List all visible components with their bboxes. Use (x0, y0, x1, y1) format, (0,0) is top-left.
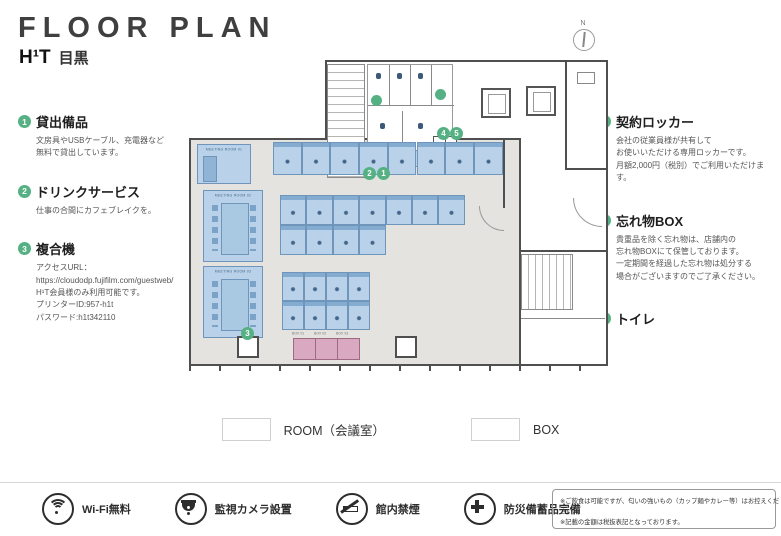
facility-wifi: Wi-Fi無料 (42, 493, 131, 525)
no-smoking-icon (336, 493, 368, 525)
stairwell-lower (521, 254, 573, 310)
box-cell: BOX 03 (337, 338, 360, 360)
elevator-2 (526, 86, 556, 116)
marker-1-badge: 1 (18, 115, 31, 128)
brand-line: H¹T目黒 (19, 47, 89, 69)
plan-marker-4: 4 (437, 127, 450, 140)
toilet-fixture-icon (380, 123, 385, 129)
facility-camera: 監視カメラ設置 (175, 493, 292, 525)
box-cell: BOX 02 (315, 338, 338, 360)
meeting-room-02: MEETING ROOM 02 (203, 190, 263, 262)
phone-booth (438, 195, 464, 225)
wall (565, 62, 567, 170)
phone-booth (304, 301, 326, 330)
phone-booth (330, 142, 359, 175)
pillar (395, 336, 417, 358)
wall (565, 168, 608, 170)
plan-toilet-marker (371, 95, 382, 106)
note-lending-equipment: 1 貸出備品 文房具やUSBケーブル、充電器など 無料で貸出しています。 (18, 112, 190, 160)
grid-ticks (189, 366, 609, 371)
page-title: FLOOR PLAN (18, 12, 277, 45)
phone-booth (412, 195, 438, 225)
floor-plan: ◀ ENTRANCE MEETING ROOM 01 MEETING ROOM … (185, 48, 615, 403)
wall (503, 140, 505, 208)
wifi-icon (42, 493, 74, 525)
disclaimer-text: ※ご飲食は可能ですが、匂いの強いもの（カップ麺やカレー等）はお控えください。 ※… (560, 496, 781, 527)
phone-booth (348, 301, 370, 330)
phone-booth (304, 272, 326, 301)
camera-icon (175, 493, 207, 525)
marker-3-badge: 3 (18, 242, 31, 255)
box-cell: BOX 01 (293, 338, 316, 360)
store-location: 目黒 (59, 50, 89, 67)
legend-box: BOX (471, 418, 559, 441)
phone-booth (306, 195, 332, 225)
note-drink-service: 2 ドリンクサービス 仕事の合間にカフェブレイクを。 (18, 182, 190, 217)
plan-marker-1: 1 (377, 167, 390, 180)
phone-booth (302, 142, 331, 175)
phone-booth (417, 142, 446, 175)
phone-booth (306, 225, 332, 255)
plan-marker-3: 3 (241, 327, 254, 340)
box-cell-label: BOX 03 (336, 332, 357, 336)
toilet-fixture-icon (418, 73, 423, 79)
phone-booth (326, 301, 348, 330)
note-contract-locker: 4 契約ロッカー 会社の従業員様が共有して お使いいただける専用ロッカーです。 … (598, 112, 778, 185)
plan-toilet-marker (435, 89, 446, 100)
meeting-room-01: MEETING ROOM 01 (197, 144, 251, 184)
phone-booth (326, 272, 348, 301)
box-cell-label: BOX 01 (292, 332, 313, 336)
phone-booth (280, 195, 306, 225)
meeting-room-03: MEETING ROOM 03 (203, 266, 263, 338)
phone-booth (282, 301, 304, 330)
note-lost-and-found-box: 5 忘れ物BOX 貴重品を除く忘れ物は、店舗内の 忘れ物BOXにて保管しておりま… (598, 211, 778, 284)
phone-booth (280, 225, 306, 255)
toilet-fixture-icon (397, 73, 402, 79)
first-aid-icon (464, 493, 496, 525)
phone-booth (474, 142, 503, 175)
phone-booth (359, 195, 385, 225)
box-cell-label: BOX 02 (314, 332, 335, 336)
facility-no-smoking: 館内禁煙 (336, 493, 420, 525)
plan-marker-5: 5 (450, 127, 463, 140)
utility-box (577, 72, 595, 84)
north-label: N (572, 20, 594, 27)
phone-booth (445, 142, 474, 175)
toilet-fixture-icon (418, 123, 423, 129)
phone-booth (333, 195, 359, 225)
elevator-1 (481, 88, 511, 118)
phone-booth (282, 272, 304, 301)
phone-booth (273, 142, 302, 175)
plan-marker-2: 2 (363, 167, 376, 180)
box-color-swatch (471, 418, 520, 441)
phone-booth (359, 225, 385, 255)
phone-booth (386, 195, 412, 225)
right-notes-column: 4 契約ロッカー 会社の従業員様が共有して お使いいただける専用ロッカーです。 … (598, 112, 778, 350)
footer-bar: Wi-Fi無料 監視カメラ設置 館内禁煙 防災備蓄品完備 (0, 482, 781, 536)
room-color-swatch (222, 418, 271, 441)
marker-2-badge: 2 (18, 185, 31, 198)
brand-logo: H¹T (19, 47, 51, 68)
phone-booth (348, 272, 370, 301)
legend: ROOM（会議室） BOX (0, 418, 781, 441)
phone-booth (388, 142, 417, 175)
note-toilet: トイレ (598, 309, 778, 328)
phone-booth (333, 225, 359, 255)
left-notes-column: 1 貸出備品 文房具やUSBケーブル、充電器など 無料で貸出しています。 2 ド… (18, 112, 190, 346)
facility-row: Wi-Fi無料 監視カメラ設置 館内禁煙 防災備蓄品完備 (42, 493, 581, 525)
note-copier: 3 複合機 アクセスURL： https://cloudodp.fujifilm… (18, 239, 190, 324)
wall (521, 318, 605, 319)
toilet-fixture-icon (376, 73, 381, 79)
legend-room: ROOM（会議室） (222, 418, 385, 441)
disclaimer-box: ※ご飲食は可能ですが、匂いの強いもの（カップ麺やカレー等）はお控えください。 ※… (552, 489, 776, 529)
